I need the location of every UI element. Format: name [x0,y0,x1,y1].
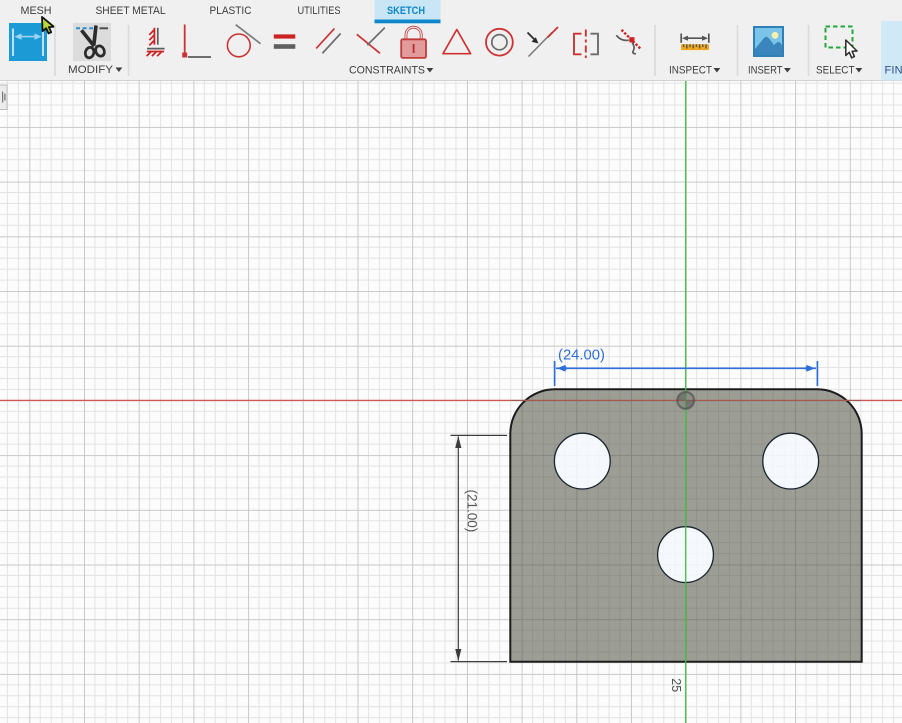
svg-text:FINI: FINI [885,65,902,77]
svg-text:PLASTIC: PLASTIC [210,5,252,17]
svg-text:(21.00): (21.00) [465,490,480,533]
svg-text:CONSTRAINTS: CONSTRAINTS [349,65,425,77]
svg-text:SKETCH: SKETCH [387,5,425,17]
svg-text:UTILITIES: UTILITIES [298,5,341,17]
svg-text:(24.00): (24.00) [558,348,605,364]
svg-text:INSERT: INSERT [748,65,783,77]
svg-text:SHEET METAL: SHEET METAL [96,5,166,17]
svg-text:MODIFY: MODIFY [68,64,114,76]
svg-text:25: 25 [669,678,683,692]
svg-text:SELECT: SELECT [816,65,855,77]
svg-text:MESH: MESH [21,5,52,17]
svg-text:INSPECT: INSPECT [669,65,712,77]
